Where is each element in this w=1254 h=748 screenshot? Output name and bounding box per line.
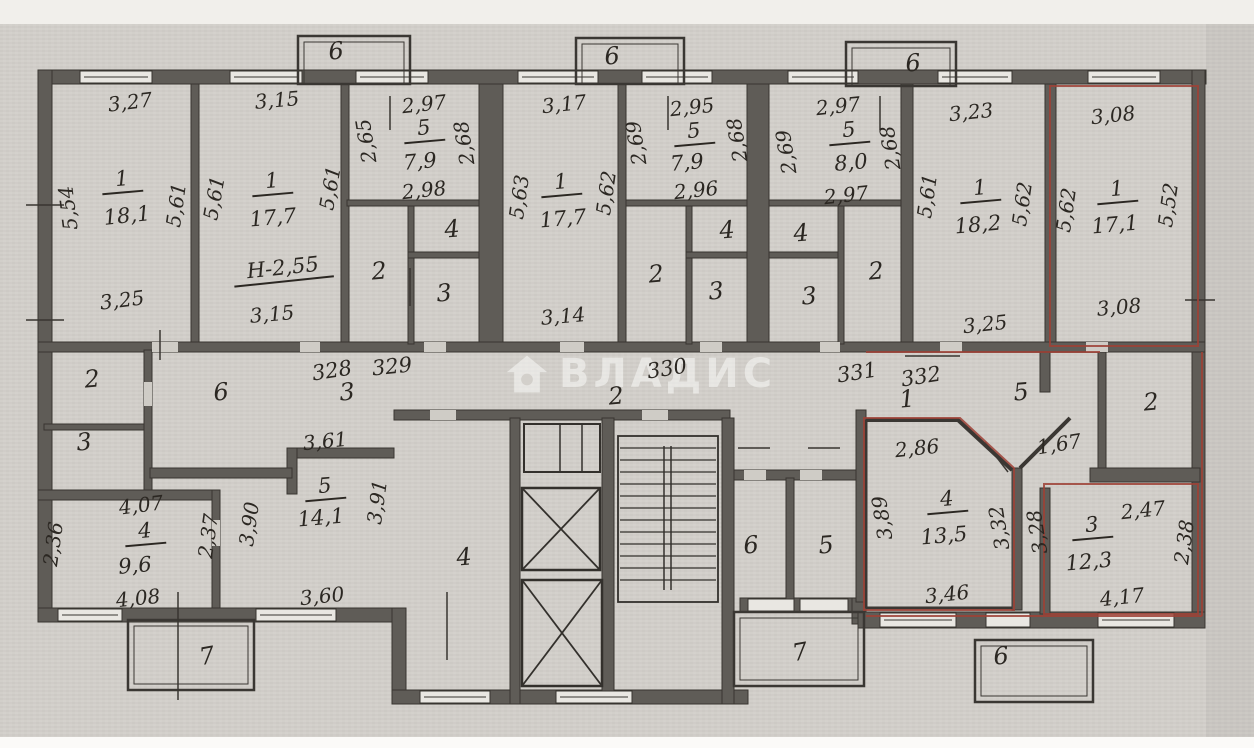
dimension-label: 3,32 <box>986 504 1013 551</box>
room-area-label: 5 <box>303 474 346 503</box>
room-number-label: 4 <box>718 217 735 242</box>
room-area-label: 5 <box>827 118 870 147</box>
room-number-label: 6 <box>742 532 759 557</box>
dimension-label: 5,61 <box>163 182 189 229</box>
room-number-label: 2 <box>370 258 387 283</box>
dimension-label: 1,67 <box>1035 431 1082 458</box>
dimension-label: 3,25 <box>962 312 1008 337</box>
room-number-label: 1 <box>898 386 915 411</box>
room-area-label: 1 <box>539 170 582 199</box>
dimension-label: 3,15 <box>249 302 295 326</box>
room-number-label: 7 <box>197 643 216 669</box>
dimension-label: 2,65 <box>353 117 380 164</box>
room-area-label: 12,3 <box>1065 550 1113 575</box>
dimension-label: 5,52 <box>1155 182 1181 229</box>
room-number-label: 7 <box>790 639 809 665</box>
dimension-label: 3,08 <box>1090 103 1136 128</box>
dimension-label: 2,96 <box>673 178 719 203</box>
room-area-label: 3 <box>1070 513 1113 542</box>
room-area-label: 7,9 <box>402 150 437 174</box>
dimension-label: 2,97 <box>823 183 869 208</box>
room-number-label: 4 <box>792 220 809 245</box>
room-number-label: 6 <box>603 43 620 68</box>
room-area-label: 1 <box>958 176 1001 205</box>
dimension-label: 5,61 <box>316 164 343 211</box>
plan-labels: 3,275,545,61118,13,253,155,615,61117,7Н-… <box>0 0 1254 748</box>
room-number-label: 4 <box>455 544 472 569</box>
room-area-label: 7,9 <box>669 151 704 175</box>
dimension-label: 5,62 <box>1053 187 1079 234</box>
room-area-label: 18,2 <box>954 213 1002 238</box>
dimension-label: 2,68 <box>451 119 478 166</box>
room-number-label: 2 <box>867 258 884 283</box>
room-number-label: 6 <box>212 379 229 404</box>
dimension-label: 5,63 <box>506 174 532 221</box>
room-area-label: 1 <box>100 167 143 196</box>
unit-number-label: 331 <box>836 359 879 386</box>
room-area-label: 18,1 <box>103 203 152 229</box>
room-area-label: 5 <box>402 116 445 145</box>
dimension-label: 3,17 <box>541 92 587 117</box>
dimension-label: 3,46 <box>924 582 970 607</box>
room-number-label: 3 <box>75 429 92 454</box>
dimension-label: 5,54 <box>55 185 80 232</box>
dimension-label: 3,08 <box>1096 295 1142 319</box>
room-area-label: 17,7 <box>249 206 297 231</box>
dimension-label: 3,23 <box>948 100 994 125</box>
dimension-label: 5,62 <box>593 170 619 217</box>
dimension-label: 3,14 <box>540 304 586 328</box>
dimension-label: 3,15 <box>254 88 300 112</box>
dimension-label: 2,37 <box>195 513 221 560</box>
dimension-label: 3,60 <box>299 584 345 609</box>
dimension-label: 3,61 <box>302 429 348 454</box>
dimension-label: 2,47 <box>1120 498 1166 523</box>
room-area-label: 5 <box>672 119 715 148</box>
room-number-label: 5 <box>817 532 834 557</box>
room-number-label: 3 <box>707 278 724 303</box>
room-number-label: 6 <box>904 50 921 75</box>
scanned-floor-plan-page: ВЛАДИС 3,275,545,61118,13,253,155,615,61… <box>0 0 1254 748</box>
room-area-label: 8,0 <box>833 151 868 175</box>
dimension-label: 5,61 <box>200 174 227 221</box>
dimension-label: 2,97 <box>401 92 447 117</box>
room-area-label: 9,6 <box>117 554 152 578</box>
dimension-label: 3,89 <box>869 494 896 541</box>
room-area-label: 14,1 <box>297 506 345 531</box>
dimension-label: 4,08 <box>115 586 161 611</box>
room-number-label: 5 <box>1012 379 1029 404</box>
room-number-label: 2 <box>647 261 664 286</box>
dimension-label: 3,25 <box>99 287 146 312</box>
room-area-label: 4 <box>925 487 968 516</box>
room-number-label: 2 <box>83 366 100 391</box>
room-number-label: 2 <box>1142 389 1159 414</box>
dimension-label: 2,69 <box>623 119 650 166</box>
room-number-label: 6 <box>327 38 344 63</box>
room-number-label: 3 <box>338 379 355 404</box>
dimension-label: 4,07 <box>118 492 165 517</box>
room-area-label: Н-2,55 <box>232 252 334 287</box>
dimension-label: 2,36 <box>40 521 66 568</box>
dimension-label: 3,28 <box>1024 508 1051 555</box>
room-area-label: 1 <box>1095 177 1138 206</box>
room-number-label: 3 <box>800 283 817 308</box>
dimension-label: 3,27 <box>107 89 154 114</box>
dimension-label: 2,68 <box>724 116 751 163</box>
dimension-label: 2,98 <box>401 178 447 203</box>
dimension-label: 4,17 <box>1099 585 1145 610</box>
unit-number-label: 329 <box>371 354 413 379</box>
room-number-label: 3 <box>435 280 452 305</box>
dimension-label: 3,91 <box>364 479 390 526</box>
room-area-label: 4 <box>123 519 166 548</box>
unit-number-label: 330 <box>646 355 689 382</box>
dimension-label: 2,97 <box>815 94 861 119</box>
room-area-label: 13,5 <box>920 524 968 549</box>
room-number-label: 2 <box>607 383 624 408</box>
room-number-label: 4 <box>443 216 460 241</box>
dimension-label: 3,90 <box>236 501 262 548</box>
room-area-label: 17,1 <box>1091 213 1139 238</box>
dimension-label: 5,61 <box>914 173 940 220</box>
dimension-label: 2,86 <box>894 436 940 461</box>
dimension-label: 2,95 <box>669 95 715 120</box>
room-number-label: 6 <box>992 643 1009 668</box>
room-area-label: 17,7 <box>539 207 587 232</box>
dimension-label: 2,69 <box>773 128 800 175</box>
dimension-label: 5,62 <box>1009 181 1035 228</box>
room-area-label: 1 <box>250 169 293 198</box>
dimension-label: 2,38 <box>1171 519 1197 566</box>
dimension-label: 2,68 <box>877 124 904 171</box>
